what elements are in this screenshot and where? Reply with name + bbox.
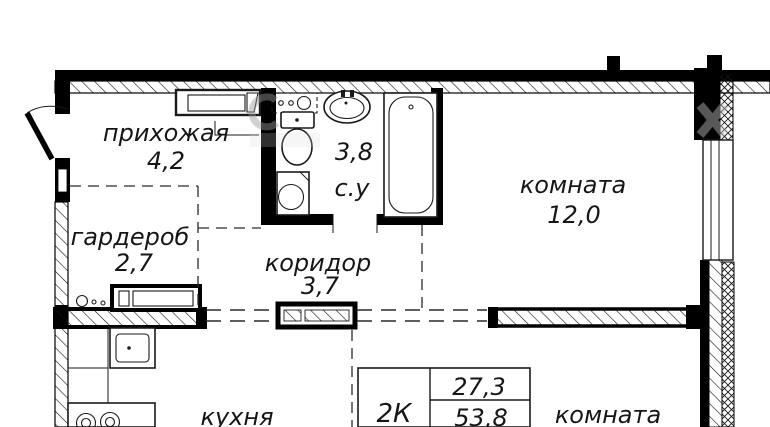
watermark bbox=[250, 97, 725, 140]
room-label-room-1: комната bbox=[520, 171, 626, 199]
stove-fixture bbox=[68, 403, 155, 427]
apartment-type: 2К bbox=[376, 399, 413, 427]
kitchen-counter bbox=[68, 329, 108, 403]
washing-machine-fixture bbox=[277, 172, 309, 215]
entrance-door bbox=[27, 106, 68, 159]
wardrobe-counter-fixture bbox=[77, 286, 201, 310]
room-label-room-2: комната bbox=[555, 401, 661, 427]
bathroom-shelf-dashed bbox=[272, 93, 317, 113]
corridor-pier-wall bbox=[278, 304, 355, 327]
room-area-wardrobe: 2,7 bbox=[115, 249, 154, 277]
sink-fixture bbox=[324, 90, 370, 123]
kitchen-sink-fixture bbox=[110, 328, 155, 368]
room-label-hallway: прихожая bbox=[103, 119, 229, 147]
room-divider-wall bbox=[488, 305, 708, 329]
room-area-hallway: 4,2 bbox=[147, 147, 185, 175]
room-label-wardrobe: гардероб bbox=[71, 223, 190, 251]
room-area-bathroom: 3,8 bbox=[335, 138, 373, 166]
floor-plan-page: прихожая 4,2 3,8 с.у комната 12,0 гардер… bbox=[0, 0, 770, 427]
info-table: 2К 27,3 53,8 bbox=[358, 368, 530, 427]
room-label-kitchen: кухня bbox=[200, 403, 273, 427]
floor-plan-drawing: прихожая 4,2 3,8 с.у комната 12,0 гардер… bbox=[0, 0, 770, 427]
room-area-corridor: 3,7 bbox=[301, 272, 340, 300]
area-value-bottom: 53,8 bbox=[454, 404, 507, 427]
room-area-room-1: 12,0 bbox=[547, 201, 600, 229]
bathtub-fixture bbox=[384, 93, 437, 217]
window bbox=[703, 140, 733, 260]
room-label-bathroom: с.у bbox=[334, 174, 370, 202]
area-value-top: 27,3 bbox=[452, 373, 505, 401]
